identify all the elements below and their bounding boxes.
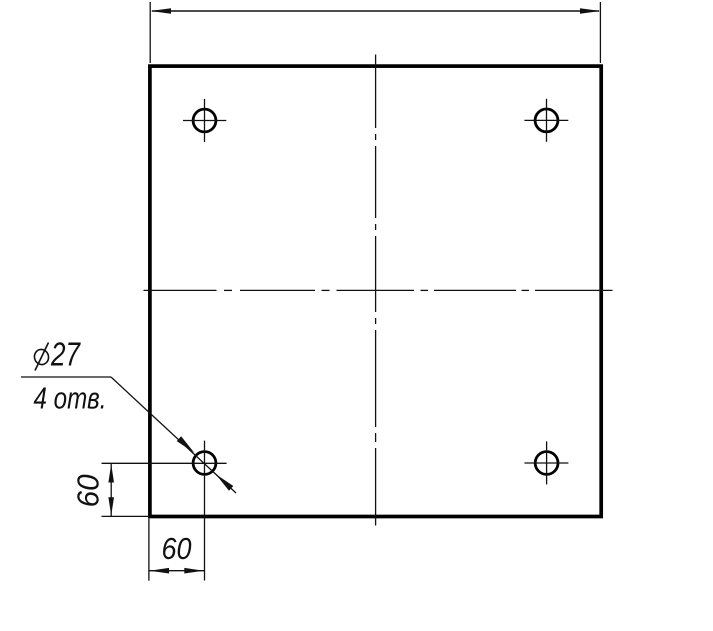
svg-text:27: 27 [50,336,81,373]
svg-text:60: 60 [162,531,192,566]
svg-text:60: 60 [71,474,106,507]
svg-text:4 отв.: 4 отв. [34,381,107,416]
